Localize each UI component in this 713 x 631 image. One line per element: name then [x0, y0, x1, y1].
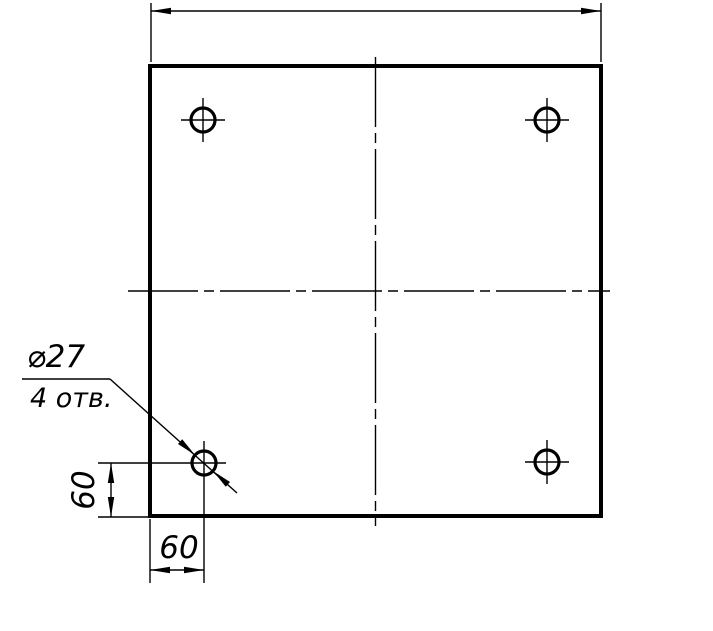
hole-callout: ⌀27 4 отв.: [22, 339, 237, 493]
dimension-hole-offset-vertical: 60: [66, 463, 150, 517]
hole-top-left: [181, 98, 225, 142]
callout-count-label: 4 отв.: [30, 383, 113, 414]
dimension-value-horizontal-60: 60: [159, 530, 198, 566]
hole-top-right: [525, 98, 569, 142]
leader-arrowhead-lower-icon: [213, 471, 230, 487]
dimension-overall-width: [151, 3, 601, 62]
arrowhead-right-icon: [184, 567, 204, 573]
arrowhead-left-icon: [150, 567, 170, 573]
plate-drawing: 60 60 ⌀27 4 отв.: [0, 0, 713, 631]
arrowhead-left-icon: [151, 8, 171, 14]
leader-arrowhead-upper-icon: [178, 439, 195, 455]
arrowhead-down-icon: [108, 497, 114, 517]
arrowhead-right-icon: [581, 8, 601, 14]
dimension-value-vertical-60: 60: [66, 470, 102, 509]
callout-diameter-label: ⌀27: [27, 339, 85, 375]
dimension-hole-offset-horizontal: 60: [150, 519, 204, 583]
arrowhead-up-icon: [108, 463, 114, 483]
hole-bottom-right: [525, 440, 569, 484]
engineering-drawing-canvas: 60 60 ⌀27 4 отв.: [0, 0, 713, 631]
